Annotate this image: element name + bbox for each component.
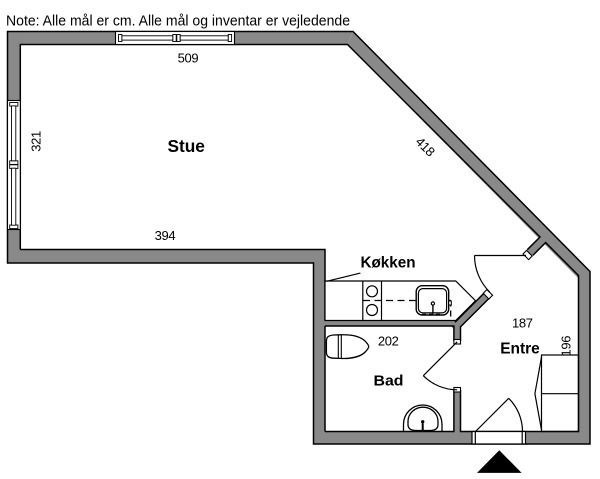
svg-text:Note: Alle mål er cm. Alle mål: Note: Alle mål er cm. Alle mål og invent… xyxy=(6,12,350,29)
svg-text:Entre: Entre xyxy=(500,340,540,357)
svg-text:Køkken: Køkken xyxy=(361,255,416,272)
svg-text:Bad: Bad xyxy=(374,374,404,390)
svg-text:394: 394 xyxy=(155,228,176,243)
svg-text:418: 418 xyxy=(413,134,438,159)
svg-text:202: 202 xyxy=(378,333,399,348)
svg-text:509: 509 xyxy=(178,51,199,66)
svg-text:Stue: Stue xyxy=(167,136,205,156)
svg-text:187: 187 xyxy=(512,315,533,330)
svg-text:321: 321 xyxy=(28,131,43,152)
svg-text:196: 196 xyxy=(558,336,573,357)
